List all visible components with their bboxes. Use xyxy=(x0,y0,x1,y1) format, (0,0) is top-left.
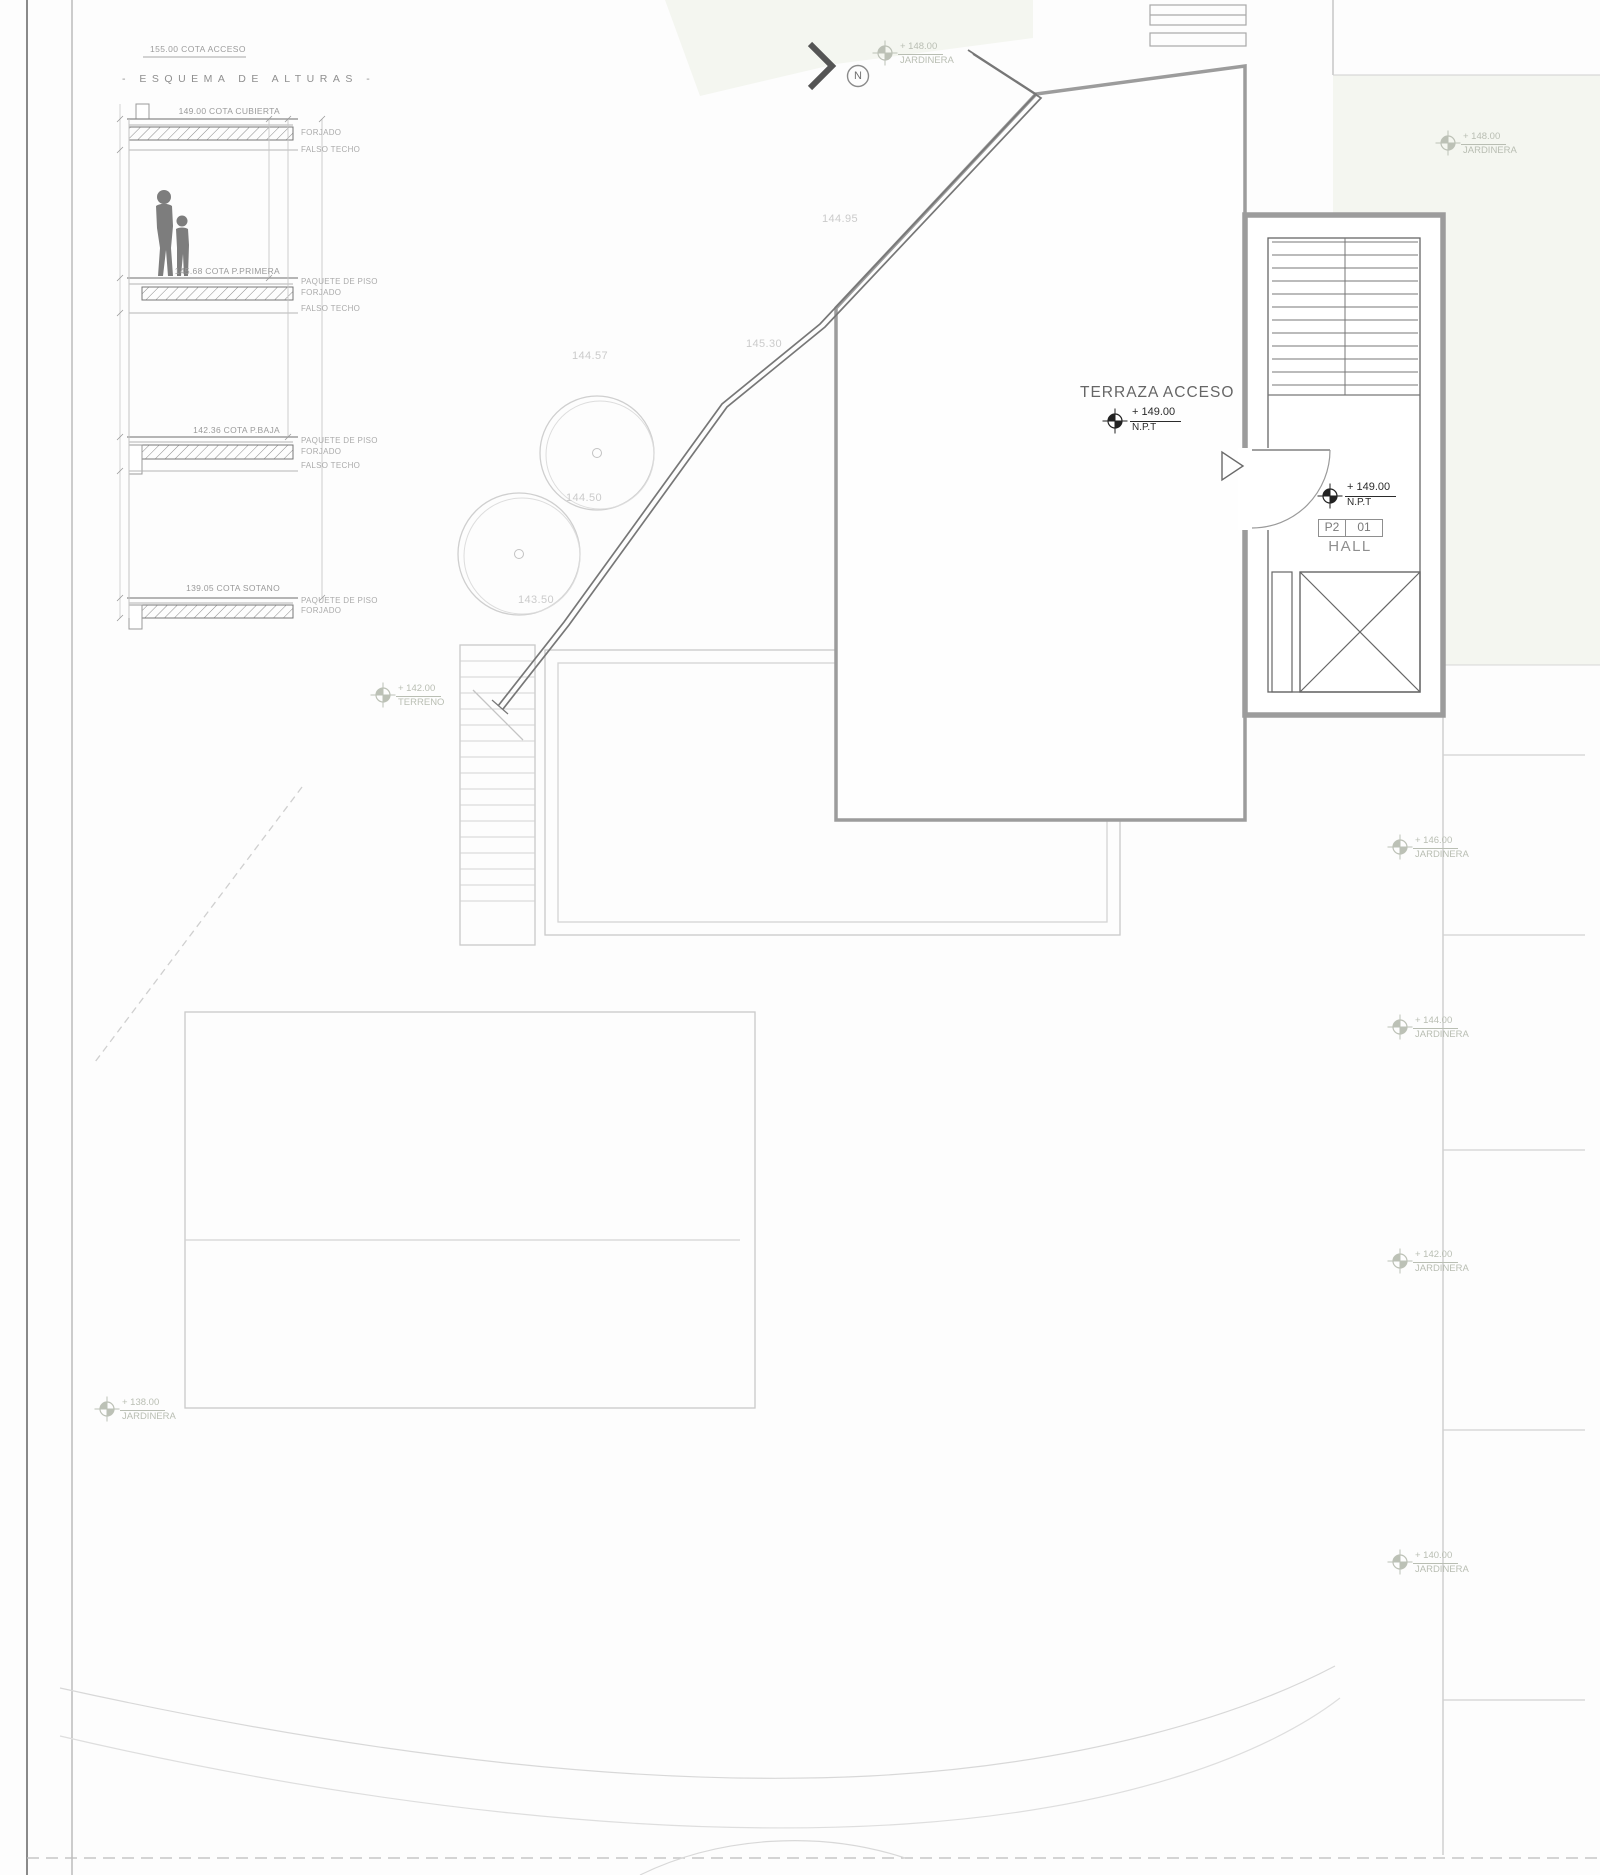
site-plan-linework xyxy=(0,0,1600,1875)
level-marker-icon xyxy=(1102,408,1128,439)
level-note: FALSO TECHO xyxy=(301,461,360,470)
level-note: PAQUETE DE PISO xyxy=(301,436,378,445)
level-value: + 144.00 xyxy=(1413,1015,1458,1029)
terrain-contours xyxy=(60,1666,1340,1875)
architectural-sheet: 155.00 COTA ACCESO - ESQUEMA DE ALTURAS … xyxy=(0,0,1600,1875)
building-terraza xyxy=(836,66,1245,820)
level-cota-baja: 142.36 COTA P.BAJA xyxy=(120,425,280,435)
contour-label: 144.57 xyxy=(572,350,608,362)
level-label: JARDINERA xyxy=(1413,1263,1469,1275)
npt-marker-hall: + 149.00 N.P.T xyxy=(1345,481,1396,509)
jardinera-marker: + 148.00 JARDINERA xyxy=(1461,131,1517,157)
room-tag: P2 01 xyxy=(1318,519,1383,537)
cota-acceso-note: 155.00 COTA ACCESO xyxy=(150,44,246,54)
level-value: + 146.00 xyxy=(1413,835,1458,849)
level-label: JARDINERA xyxy=(120,1411,176,1423)
contour-label: 144.50 xyxy=(566,492,602,504)
level-marker-icon xyxy=(1387,1014,1413,1045)
jardinera-marker: + 138.00 JARDINERA xyxy=(120,1397,176,1423)
level-label: JARDINERA xyxy=(898,55,954,67)
level-value: + 142.00 xyxy=(1413,1249,1458,1263)
level-datum: N.P.T xyxy=(1345,497,1396,510)
terrace-lines xyxy=(1443,715,1585,1855)
figure-silhouettes xyxy=(156,190,189,276)
level-marker-icon xyxy=(1317,483,1343,514)
stair-core xyxy=(1222,215,1443,715)
jardinera-marker: + 148.00 JARDINERA xyxy=(898,41,954,67)
level-marker-icon xyxy=(872,40,898,71)
jardinera-marker: + 140.00 JARDINERA xyxy=(1413,1550,1469,1576)
terraza-title: TERRAZA ACCESO xyxy=(1080,384,1234,402)
npt-marker-terraza: + 149.00 N.P.T xyxy=(1130,406,1181,434)
level-cota-primera: 145.68 COTA P.PRIMERA xyxy=(120,266,280,276)
level-note: FALSO TECHO xyxy=(301,304,360,313)
height-scheme-linework xyxy=(117,57,325,629)
room-name-hall: HALL xyxy=(1318,538,1382,555)
room-tag-zone: P2 xyxy=(1319,520,1345,536)
level-note: PAQUETE DE PISO xyxy=(301,277,378,286)
level-value: + 142.00 xyxy=(396,683,441,697)
scheme-title: - ESQUEMA DE ALTURAS - xyxy=(122,73,375,85)
room-tag-number: 01 xyxy=(1345,520,1382,536)
contour-label: 143.50 xyxy=(518,594,554,606)
level-label: JARDINERA xyxy=(1413,849,1469,861)
tree xyxy=(458,396,654,615)
door-opening xyxy=(1238,448,1270,530)
north-label: N xyxy=(847,70,869,82)
level-note: FORJADO xyxy=(301,447,341,456)
level-label: TERRENO xyxy=(396,697,444,709)
jardinera-marker: + 142.00 JARDINERA xyxy=(1413,1249,1469,1275)
level-note: FORJADO xyxy=(301,288,341,297)
level-marker-icon xyxy=(1387,1549,1413,1580)
level-value: + 140.00 xyxy=(1413,1550,1458,1564)
level-note: FALSO TECHO xyxy=(301,145,360,154)
level-note: FORJADO xyxy=(301,128,341,137)
terreno-marker: + 142.00 TERRENO xyxy=(396,683,444,709)
level-note: PAQUETE DE PISO xyxy=(301,596,378,605)
level-cota-sotano: 139.05 COTA SOTANO xyxy=(120,583,280,593)
level-value: + 148.00 xyxy=(898,41,943,55)
level-label: JARDINERA xyxy=(1413,1029,1469,1041)
contour-label: 144.95 xyxy=(822,213,858,225)
level-note: FORJADO xyxy=(301,606,341,615)
jardinera-marker: + 146.00 JARDINERA xyxy=(1413,835,1469,861)
level-value: + 148.00 xyxy=(1461,131,1506,145)
level-label: JARDINERA xyxy=(1413,1564,1469,1576)
level-label: JARDINERA xyxy=(1461,145,1517,157)
level-cota-cubierta: 149.00 COTA CUBIERTA xyxy=(120,106,280,116)
level-value: + 149.00 xyxy=(1130,406,1181,422)
contour-label: 145.30 xyxy=(746,338,782,350)
level-marker-icon xyxy=(1387,1248,1413,1279)
level-marker-icon xyxy=(1435,130,1461,161)
level-marker-icon xyxy=(1387,834,1413,865)
upper-stair-fragment xyxy=(1150,5,1246,46)
jardinera-marker: + 144.00 JARDINERA xyxy=(1413,1015,1469,1041)
level-value: + 138.00 xyxy=(120,1397,165,1411)
level-datum: N.P.T xyxy=(1130,422,1181,435)
level-value: + 149.00 xyxy=(1345,481,1396,497)
level-marker-icon xyxy=(370,682,396,713)
level-marker-icon xyxy=(94,1396,120,1427)
